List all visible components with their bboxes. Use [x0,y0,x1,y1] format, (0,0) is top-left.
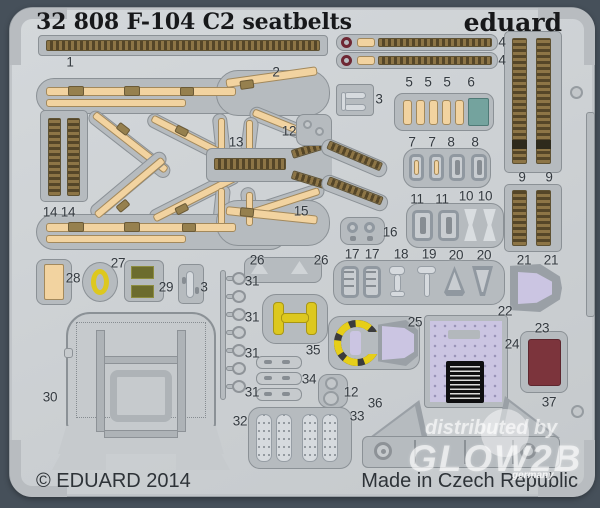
part-number-label: 19 [422,247,436,262]
part-number-label: 36 [368,396,382,411]
part-number-label: 2 [272,65,279,80]
part-number-label: 6 [467,75,474,90]
part-number-label: 11 [435,192,448,207]
seat-frame-cutout [110,370,172,422]
watermark-distributed-by: distributed by [425,417,557,440]
part-number-label: 14 [43,205,57,220]
part-number-label: 23 [535,321,549,336]
part-number-label: 13 [229,135,243,150]
part-number-label: 12 [344,385,358,400]
belt-buckle [124,86,140,96]
texture-strip [46,40,320,51]
part-number-label: 8 [447,135,454,150]
part-number-label: 32 [233,414,247,429]
belt-dark-band [536,140,551,149]
teal-pad [468,98,489,126]
copyright-text: © EDUARD 2014 [36,470,191,493]
part-number-label: 3 [200,280,207,295]
part-number-label: 5 [405,75,412,90]
part-number-label: 35 [306,343,320,358]
part-number-label: 31 [245,310,259,325]
part-number-label: 33 [350,409,364,424]
part-number-label: 21 [517,253,531,268]
part-number-label: 18 [394,247,408,262]
grommet [232,326,246,339]
frame-edge-strip [586,112,595,317]
grommet [232,290,246,303]
part-number-label: 3 [375,92,382,107]
part-number-label: 10 [478,189,492,204]
belt-buckle [68,86,84,96]
part-number-label: 20 [477,248,491,263]
part-number-label: 30 [43,390,57,405]
part-number-label: 37 [542,395,556,410]
belt-buckle [124,222,140,232]
part-number-label: 34 [302,372,316,387]
part-number-label: 24 [505,337,519,352]
part-number-label: 8 [471,135,478,150]
part-number-label: 7 [428,135,435,150]
belt-dark-band [512,140,527,149]
belt-buckle [68,222,84,232]
photo-background: 32 808 F-104 C2 seatbelts eduard [0,0,600,508]
part-number-label: 9 [518,170,525,185]
part-number-label: 29 [159,280,173,295]
part-number-label: 12 [282,124,296,139]
part-number-label: 5 [424,75,431,90]
fret-title: 32 808 F-104 C2 seatbelts [36,9,352,35]
part-number-label: 21 [544,253,558,268]
yellow-ring [91,269,109,295]
panel-handle [448,330,480,339]
part-number-label: 7 [408,135,415,150]
watermark-glow2b: GLOW2B [408,438,582,480]
part-number-label: 25 [408,315,422,330]
part-number-label: 22 [498,304,512,319]
belt-loop [341,37,352,48]
part-number-label: 9 [545,170,552,185]
part-number-label: 16 [383,225,397,240]
part-number-label: 4 [498,53,505,68]
sheet-hole [570,86,583,99]
part-number-label: 27 [111,256,125,271]
part-number-label: 26 [314,253,328,268]
part-number-label: 17 [365,247,379,262]
brand-logo: eduard [464,8,562,37]
part-number-label: 31 [245,346,259,361]
part-number-label: 28 [66,271,80,286]
part-number-label: 20 [449,248,463,263]
part-number-label: 15 [294,204,308,219]
grommet [232,362,246,375]
part-number-label: 17 [345,247,359,262]
olive-pad [131,266,154,279]
sheet-hole [571,405,584,418]
part-number-label: 5 [443,75,450,90]
red-pad [528,339,561,386]
part-number-label: 14 [61,205,75,220]
olive-pad [131,285,154,298]
part-number-label: 26 [250,253,264,268]
watermark-germany: germany [512,470,554,481]
part-number-label: 11 [410,192,423,207]
part-number-label: 31 [245,274,259,289]
placard-text-lines [450,365,480,399]
part-number-label: 10 [459,189,473,204]
part-number-label: 31 [245,385,259,400]
belt-strap [46,99,186,107]
belt-strap [46,235,186,243]
belt-loop [341,55,352,66]
part-number-label: 1 [66,55,73,70]
